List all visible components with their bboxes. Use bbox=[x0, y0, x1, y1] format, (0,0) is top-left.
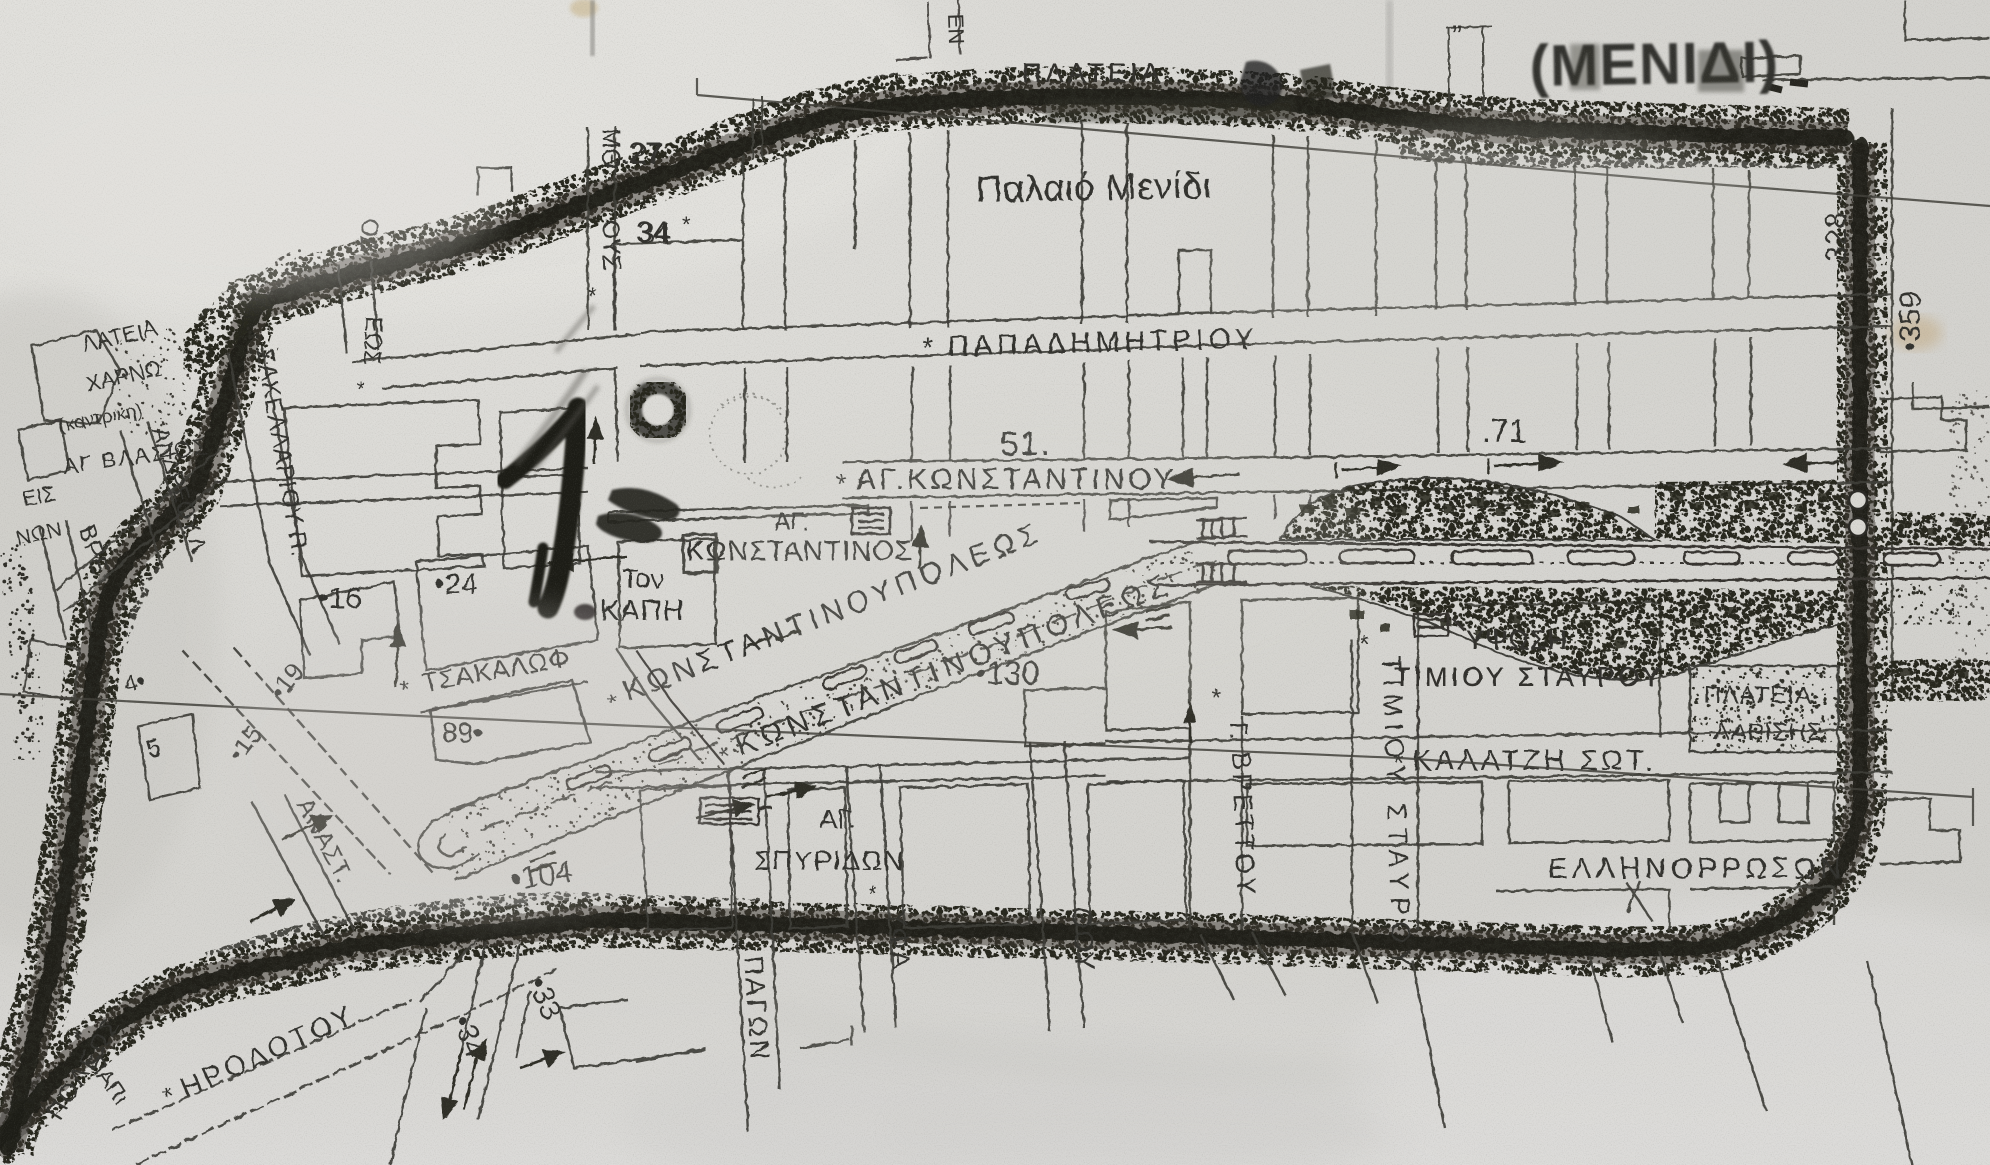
svg-text:ΠΛΑΤΕΙΑ: ΠΛΑΤΕΙΑ bbox=[1022, 58, 1164, 88]
svg-text:.27: .27 bbox=[620, 137, 662, 170]
svg-text:*: * bbox=[682, 212, 691, 237]
svg-text:ΤΙΜΙΟΥ ΣΤΑΥΡΟΥ: ΤΙΜΙΟΥ ΣΤΑΥΡΟΥ bbox=[1394, 662, 1663, 692]
svg-text:34: 34 bbox=[636, 216, 669, 249]
svg-text:ΥΨΩΣΗ: ΥΨΩΣΗ bbox=[1466, 625, 1568, 655]
